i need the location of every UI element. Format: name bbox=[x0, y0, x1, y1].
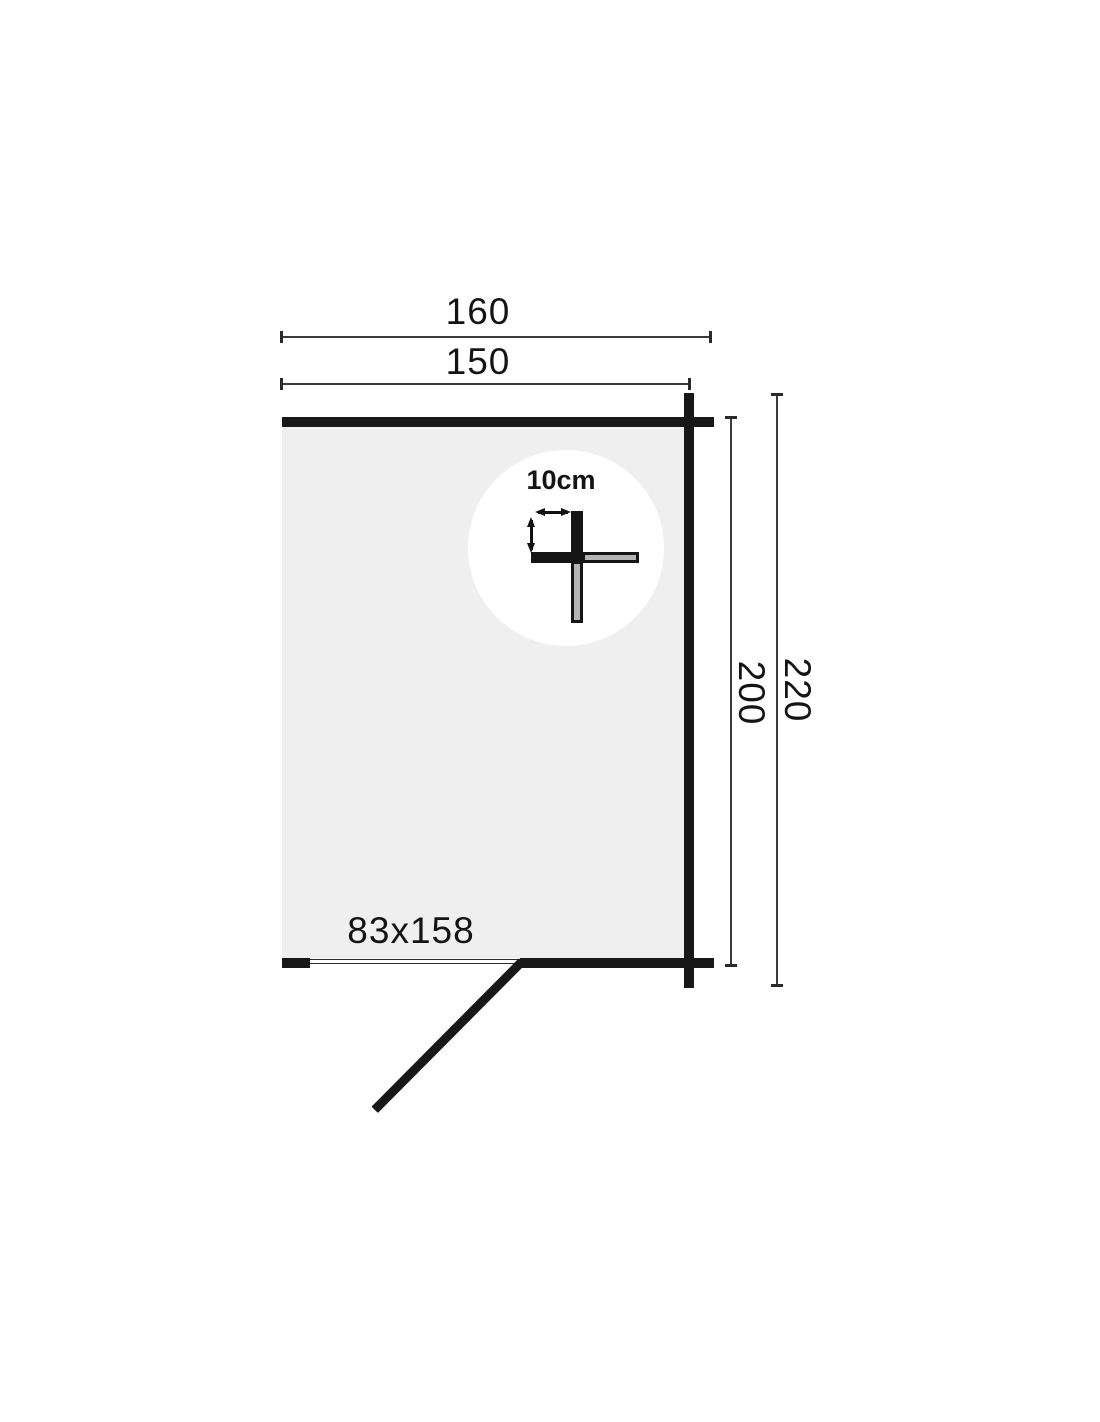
log-end-bottom bbox=[571, 561, 583, 623]
log-end-right bbox=[582, 552, 639, 563]
door-opening-threshold bbox=[310, 959, 520, 964]
arrow-head-top-icon bbox=[527, 517, 535, 527]
dim-tick bbox=[280, 331, 283, 343]
dim-line-top-outer bbox=[281, 336, 711, 338]
wall-bottom-right-segment bbox=[520, 958, 714, 968]
width-arrow-icon bbox=[535, 508, 571, 517]
dim-line-top-inner bbox=[281, 383, 690, 385]
arrow-head-right-icon bbox=[561, 508, 571, 516]
arrow-head-left-icon bbox=[535, 508, 545, 516]
door-swing-leaf bbox=[372, 958, 526, 1113]
dim-label-right-outer-depth: 220 bbox=[777, 590, 817, 790]
dim-tick bbox=[725, 964, 737, 967]
arrow-head-bottom-icon bbox=[527, 543, 535, 553]
floor-plan-diagram: 160 150 200 220 83x158 10cm bbox=[0, 0, 1100, 1422]
log-wall-horizontal bbox=[531, 552, 583, 563]
height-arrow-icon bbox=[527, 517, 536, 553]
wall-right bbox=[684, 393, 694, 988]
wall-bottom-left-segment bbox=[282, 958, 310, 968]
dim-tick bbox=[725, 416, 737, 419]
dim-label-top-inner-width: 150 bbox=[378, 342, 578, 382]
door-size-label: 83x158 bbox=[311, 911, 511, 951]
dim-label-top-outer-width: 160 bbox=[378, 292, 578, 332]
dim-tick bbox=[771, 984, 783, 987]
dim-label-right-inner-depth: 200 bbox=[731, 593, 771, 793]
dim-tick bbox=[771, 393, 783, 396]
dim-tick bbox=[280, 378, 283, 390]
dim-tick bbox=[688, 378, 691, 390]
wall-thickness-label: 10cm bbox=[500, 465, 622, 495]
wall-top bbox=[282, 417, 714, 427]
dim-tick bbox=[709, 331, 712, 343]
